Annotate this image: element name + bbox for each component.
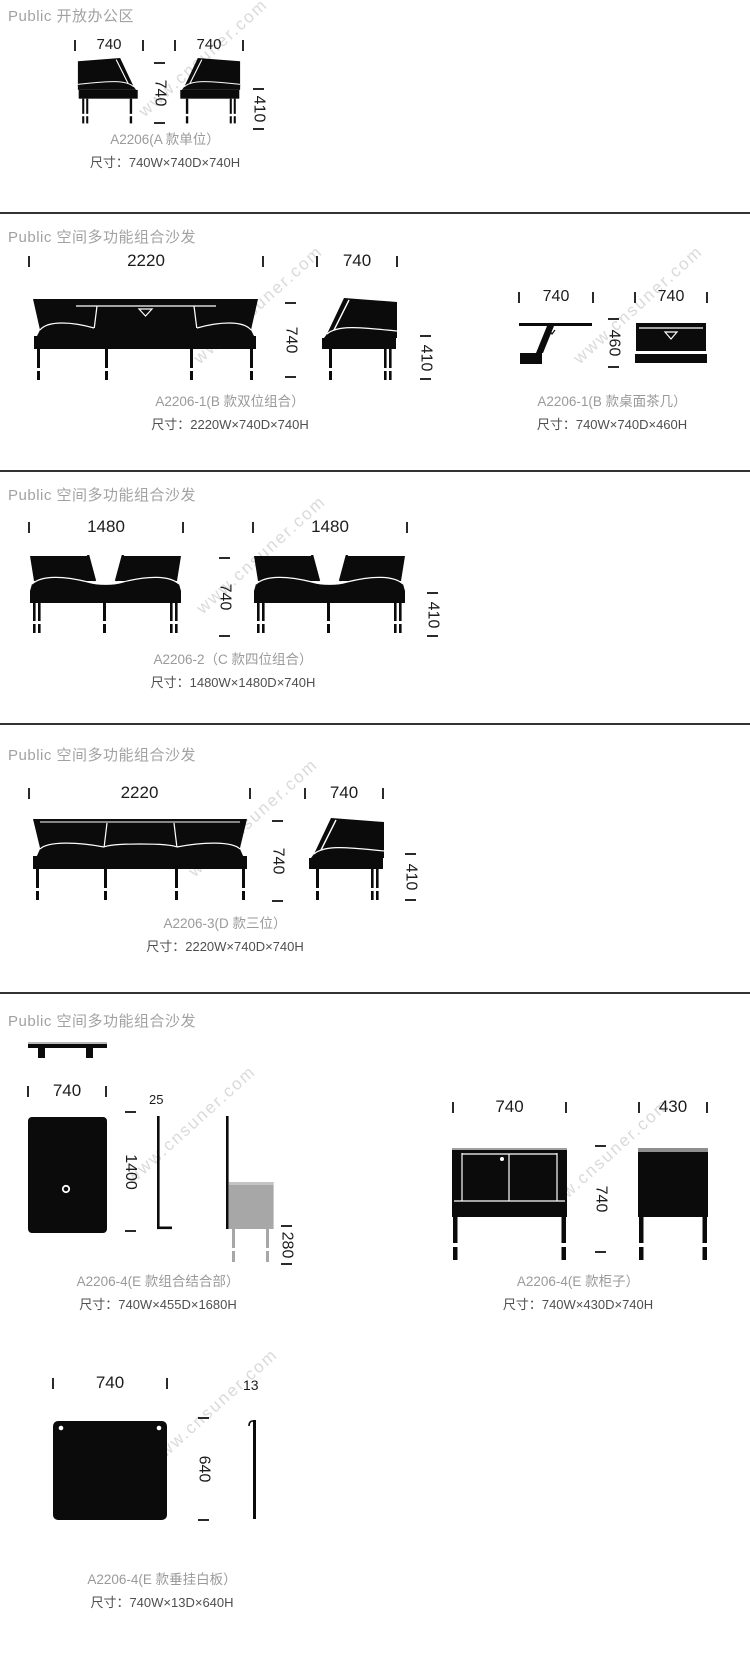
dim-value: 460 xyxy=(600,320,627,366)
dim-tick xyxy=(272,900,283,902)
dim-combo-width: 740 xyxy=(27,1082,107,1100)
dim-tick xyxy=(281,1263,292,1265)
dim-cabinet-width: 740 xyxy=(452,1098,567,1116)
model-size: 尺寸：740W×430D×740H xyxy=(458,1294,698,1313)
dim-tick xyxy=(427,635,438,637)
dim-value: 740 xyxy=(636,288,706,306)
dim-sofa-width: 2220 xyxy=(28,784,251,802)
dim-side-width: 740 xyxy=(174,36,244,54)
dim-tick xyxy=(105,1086,107,1097)
dim-value: 410 xyxy=(245,90,272,128)
model-caption: A2206-4(E 款组合结合部） xyxy=(38,1270,278,1290)
coffee-table-side-view xyxy=(519,320,592,366)
dim-value: 410 xyxy=(419,594,446,635)
dim-value: 640 xyxy=(190,1419,217,1519)
dim-sofa-width: 2220 xyxy=(28,252,264,270)
dim-depth: 740 xyxy=(216,557,232,637)
pole-side-view xyxy=(157,1116,173,1232)
model-size: 尺寸：2220W×740D×740H xyxy=(110,414,350,433)
dim-value: 740 xyxy=(29,1082,105,1100)
dim-tick xyxy=(396,256,398,267)
section-divider xyxy=(0,992,750,994)
dim-table-height: 460 xyxy=(605,318,621,368)
dim-tick xyxy=(262,256,264,267)
dim-tick xyxy=(285,376,296,378)
dim-tick xyxy=(219,635,230,637)
section4-header: Public 空间多功能组合沙发 xyxy=(8,744,196,765)
dim-value: 740 xyxy=(211,559,238,635)
dim-tick xyxy=(142,40,144,51)
model-caption: A2206-1(B 款桌面茶几） xyxy=(492,390,732,410)
dim-tick xyxy=(420,378,431,380)
dim-tick xyxy=(405,899,416,901)
dim-tick xyxy=(406,522,408,533)
dim-pole-thickness: 25 xyxy=(149,1092,163,1107)
dim-value: 410 xyxy=(397,855,424,899)
armchair-side-view xyxy=(77,58,141,125)
dim-tick xyxy=(242,40,244,51)
dim-value: 430 xyxy=(640,1098,706,1116)
model-size: 尺寸：1480W×1480D×740H xyxy=(113,672,353,691)
dim-value: 1480 xyxy=(254,518,406,536)
model-size: 尺寸：740W×740D×460H xyxy=(492,414,732,433)
section-divider xyxy=(0,212,750,214)
dim-board-width: 740 xyxy=(52,1374,168,1392)
dim-value: 740 xyxy=(264,822,291,900)
dim-board-height: 640 xyxy=(195,1417,211,1521)
whiteboard-front-view xyxy=(53,1421,167,1520)
cabinet-front-view xyxy=(452,1148,567,1260)
dim-value: 740 xyxy=(54,1374,166,1392)
dim-tick xyxy=(166,1378,168,1389)
dim-tick xyxy=(565,1102,567,1113)
dim-value: 740 xyxy=(76,36,142,54)
sofa-two-seat-front-view xyxy=(28,298,263,382)
four-seat-unit-view xyxy=(28,555,183,635)
dim-board-thickness: 13 xyxy=(243,1377,259,1393)
dim-tick xyxy=(249,788,251,799)
dim-sofa-side-width: 740 xyxy=(304,784,384,802)
panel-front-view xyxy=(28,1117,107,1233)
sofa-side-view xyxy=(318,298,398,382)
dim-tick xyxy=(198,1519,209,1521)
dim-tick xyxy=(125,1230,136,1232)
dim-tick xyxy=(608,366,619,368)
dim-tick xyxy=(595,1251,606,1253)
dim-table-side-width: 740 xyxy=(518,288,594,306)
dim-sofa-side-width: 740 xyxy=(316,252,398,270)
sofa-side-view xyxy=(305,818,385,902)
dim-right-width: 1480 xyxy=(252,518,408,536)
dim-value: 740 xyxy=(454,1098,565,1116)
section1-header: Public 开放办公区 xyxy=(8,5,134,26)
dim-tick xyxy=(154,122,165,124)
dim-value: 740 xyxy=(277,304,304,376)
section-divider xyxy=(0,470,750,472)
dim-sofa-height: 410 xyxy=(417,335,433,380)
whiteboard-side-view xyxy=(246,1419,258,1521)
dim-box-height: 280 xyxy=(278,1225,294,1265)
model-size: 尺寸：2220W×740D×740H xyxy=(105,936,345,955)
dim-value: 740 xyxy=(318,252,396,270)
dim-value: 740 xyxy=(176,36,242,54)
dim-value: 740 xyxy=(306,784,382,802)
panel-top-view xyxy=(28,1042,107,1060)
sofa-three-seat-front-view xyxy=(28,818,252,902)
model-size: 尺寸：740W×13D×640H xyxy=(42,1592,282,1611)
four-seat-unit-view xyxy=(252,555,407,635)
dim-tick xyxy=(706,292,708,303)
dim-height: 410 xyxy=(250,88,266,130)
coffee-table-front-view xyxy=(635,323,707,365)
dim-value: 2220 xyxy=(30,252,262,270)
model-caption: A2206(A 款单位） xyxy=(45,128,285,148)
dim-value: 2220 xyxy=(30,784,249,802)
dim-tick xyxy=(592,292,594,303)
model-caption: A2206-1(B 款双位组合） xyxy=(110,390,350,410)
dim-cabinet-height: 740 xyxy=(592,1145,608,1253)
section3-header: Public 空间多功能组合沙发 xyxy=(8,484,196,505)
dim-height: 410 xyxy=(424,592,440,637)
armchair-side-view xyxy=(177,58,241,125)
dim-left-width: 1480 xyxy=(28,518,184,536)
model-size: 尺寸：740W×740D×740H xyxy=(45,152,285,171)
dim-depth: 740 xyxy=(151,62,167,124)
dim-value: 740 xyxy=(146,64,173,122)
model-caption: A2206-3(D 款三位） xyxy=(105,912,345,932)
section5-header: Public 空间多功能组合沙发 xyxy=(8,1010,196,1031)
cabinet-side-view xyxy=(638,1148,708,1260)
dim-sofa-depth: 740 xyxy=(282,302,298,378)
dim-front-width: 740 xyxy=(74,36,144,54)
pole-cabinet-side-view xyxy=(226,1116,276,1263)
dim-value: 410 xyxy=(412,337,439,378)
model-caption: A2206-4(E 款柜子） xyxy=(458,1270,698,1290)
dim-value: 740 xyxy=(520,288,592,306)
section2-header: Public 空间多功能组合沙发 xyxy=(8,226,196,247)
dim-sofa-height: 410 xyxy=(402,853,418,901)
dim-value: 740 xyxy=(587,1147,614,1251)
section-divider xyxy=(0,723,750,725)
dim-cabinet-depth: 430 xyxy=(638,1098,708,1116)
model-caption: A2206-4(E 款垂挂白板） xyxy=(42,1568,282,1588)
dim-pole-height: 1400 xyxy=(122,1111,138,1232)
dim-table-front-width: 740 xyxy=(634,288,708,306)
model-size: 尺寸：740W×455D×1680H xyxy=(38,1294,278,1313)
dim-value: 280 xyxy=(273,1227,300,1263)
dim-value: 1400 xyxy=(112,1113,148,1230)
model-caption: A2206-2（C 款四位组合） xyxy=(113,648,353,668)
spec-sheet: www.cnsuner.com www.cnsuner.com www.cnsu… xyxy=(0,0,750,1658)
dim-sofa-depth: 740 xyxy=(269,820,285,902)
dim-tick xyxy=(706,1102,708,1113)
dim-value: 1480 xyxy=(30,518,182,536)
dim-tick xyxy=(382,788,384,799)
dim-tick xyxy=(182,522,184,533)
